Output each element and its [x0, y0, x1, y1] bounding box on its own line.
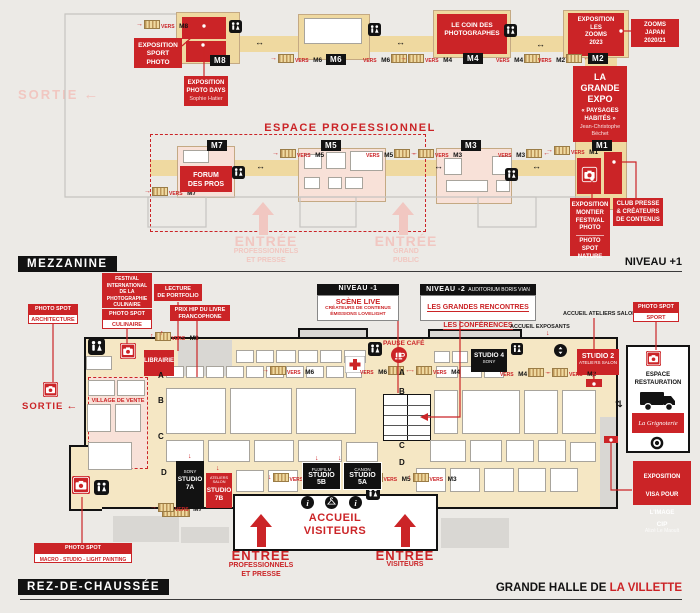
entree-pro-arrow-icon: [252, 202, 274, 235]
entree-pro-ground-arrow-icon: [250, 514, 272, 547]
photo-spot-camera-icon: [72, 476, 90, 499]
restrooms-icon: [94, 480, 109, 500]
vers-label: VERS M5: [366, 144, 393, 162]
expo-visa-cip: CIP: [633, 521, 691, 528]
restrooms-icon: [511, 342, 523, 360]
stairs-hatch: [273, 473, 289, 482]
vers-arrow-icon: →: [144, 188, 151, 195]
booth: [226, 366, 244, 378]
chip-m5: M5: [321, 140, 341, 151]
vers-m2: VERS M2←: [538, 49, 590, 67]
vers-label: VERS M4: [500, 363, 527, 381]
lecture-portfolio-callout: LECTURE DE PORTFOLIO: [154, 284, 202, 301]
booth: [524, 390, 558, 434]
booth: [506, 440, 534, 462]
chip-m3: M3: [461, 140, 481, 151]
vers-m8: ↑VERS M8: [150, 327, 199, 345]
entree-public-sub: GRAND PUBLIC: [376, 247, 436, 265]
expo-visa-author: Alizé Le Maoult: [633, 528, 691, 534]
booth: [304, 18, 362, 44]
chip-m8: M8: [210, 55, 230, 66]
ground-divider: [20, 599, 682, 600]
vers-m3: →VERS M3: [410, 144, 462, 162]
vers-label: VERS M4: [496, 49, 523, 67]
visa-connector-chip: [604, 436, 618, 443]
pause-cafe-label: PAUSE CAFÉ: [383, 340, 433, 347]
chip-m4: M4: [463, 53, 483, 64]
gray-block-bottom-1: [113, 516, 179, 542]
vers-arrow-icon: →: [410, 150, 417, 157]
accueil-visiteurs-label: ACCUEIL VISITEURS: [270, 512, 400, 538]
entree-visiteurs-arrow-icon: [394, 514, 416, 547]
booth: [166, 388, 226, 434]
vers-arrow-icon: ↓: [408, 474, 412, 481]
studio-5a-label: STUDIO 5A: [344, 472, 381, 486]
two-way-arrow-icon: ↔: [434, 161, 443, 171]
vers-m6: →VERS M6: [262, 361, 314, 379]
vers-m3: ↓VERS M3: [408, 468, 457, 486]
niveau-moins2-chip: NIVEAU -2 AUDITORIUM BORIS VIAN: [420, 284, 536, 295]
stairs-hatch: [413, 473, 429, 482]
direction-arrow-icon: ↓: [338, 455, 342, 462]
vers-arrow-icon: →: [262, 367, 269, 374]
photo-spot-architecture-label: ARCHITECTURE: [28, 314, 78, 324]
vers-arrow-icon: →: [150, 504, 157, 511]
roof-bump-1: [298, 328, 368, 339]
booth: [320, 350, 342, 363]
espace-pro-title: ESPACE PROFESSIONNEL: [240, 122, 460, 134]
sortie-ground-label: SORTIE: [22, 401, 63, 412]
entree-public-arrow-icon: [392, 202, 414, 235]
booth: [208, 440, 250, 462]
studio-5a: CANON STUDIO 5A: [343, 462, 382, 490]
studio-4-label: STUDIO 4: [471, 352, 507, 359]
booth: [328, 177, 342, 189]
vers-m4: →VERS M4: [408, 361, 460, 379]
vers-label: VERS M3: [435, 144, 462, 162]
stairs-hatch: [158, 503, 174, 512]
grande-expo-sub: « PAYSAGES HABITÉS »: [573, 108, 627, 123]
vers-arrow-icon: ↓: [268, 474, 272, 481]
vers-m1: →VERS M1: [546, 141, 598, 159]
hall-gray-strip-right: [600, 417, 616, 507]
coin-des-photographes: LE COIN DES PHOTOGRAPHES: [437, 14, 507, 54]
vers-label: VERS M3: [430, 468, 457, 486]
ground-band: REZ-DE-CHAUSSÉE: [18, 579, 169, 595]
mezzanine-divider: [20, 271, 682, 272]
two-way-arrow-icon: ↔: [256, 161, 265, 171]
expo-visa: EXPOSITION VISA POUR L'IMAGE CIP Alizé L…: [633, 461, 691, 505]
two-way-arrow-icon: ↔: [536, 39, 545, 49]
booth: [230, 388, 292, 434]
expo-sport-photo: EXPOSITION SPORT PHOTO: [134, 38, 182, 68]
niveau-plus1-label: NIVEAU +1: [560, 256, 682, 268]
booth: [236, 350, 254, 363]
vers-arrow-icon: →: [136, 21, 143, 28]
restrooms-icon: [88, 338, 105, 360]
stairs-hatch: [528, 368, 544, 377]
vers-label: VERS M4: [433, 361, 460, 379]
festival-culinaire-callout: FESTIVAL INTERNATIONAL DE LA PHOTOGRAPHI…: [102, 273, 152, 308]
vers-label: VERS M5: [384, 468, 411, 486]
stairs-hatch: [394, 149, 410, 158]
booth: [186, 366, 204, 378]
vers-arrow-icon: →: [272, 150, 279, 157]
booth: [115, 404, 141, 432]
vers-m3: VERS M3←: [498, 144, 550, 162]
vers-label: VERS M6: [287, 361, 314, 379]
expo-photo-days: EXPOSITION PHOTO DAYS Sophie Hatier: [184, 76, 228, 106]
studio-7b: ATELIERS SALON STUDIO 7B: [206, 473, 232, 508]
chip-m6: M6: [326, 54, 346, 65]
photo-spot-sport-label: SPORT: [633, 312, 679, 322]
auditorium-label: AUDITORIUM BORIS VIAN: [468, 287, 530, 293]
photo-spot-culinaire-chip: PHOTO SPOT: [102, 309, 152, 319]
restrooms-icon: [232, 166, 245, 184]
booth: [88, 442, 132, 470]
m8-expo-area-1: [182, 17, 226, 39]
vers-m4: →VERS M4: [400, 49, 452, 67]
niveau-moins2-label: NIVEAU -2: [426, 286, 465, 293]
direction-arrow-icon: ↓: [216, 465, 220, 472]
booth: [345, 177, 363, 189]
booth: [296, 388, 356, 434]
restrooms-icon: [505, 168, 518, 186]
stairs-hatch: [526, 149, 542, 158]
zooms-japan-callout: ZOOMS JAPAN 2020/21: [631, 19, 679, 47]
expo-montier: EXPOSITION MONTIER FESTIVAL PHOTO PHOTO …: [570, 198, 610, 256]
vers-arrow-icon: →: [408, 367, 415, 374]
accueil-exposants-label: ACCUEIL EXPOSANTS: [510, 324, 570, 330]
niveau-moins1-chip: NIVEAU -1: [317, 284, 399, 295]
row-letter-D: D: [161, 468, 167, 477]
vers-label: VERS M8: [172, 327, 199, 345]
photo-spot-camera-icon: [581, 166, 598, 188]
vers-m7: →VERS M7: [150, 498, 202, 516]
photo-spot-macro-chip: PHOTO SPOT: [34, 543, 132, 553]
restrooms-icon: [368, 23, 381, 41]
photo-spot-sport-chip: PHOTO SPOT: [633, 302, 679, 312]
prix-hip-callout: PRIX HIP DU LIVRE FRANCOPHONE: [170, 305, 230, 321]
village-de-vente-label: VILLAGE DE VENTE: [89, 398, 147, 404]
photo-spot-camera-icon: [646, 351, 661, 371]
elevator-icon: [554, 344, 567, 362]
stairs-hatch: [416, 366, 432, 375]
row-letter-A: A: [399, 368, 405, 377]
booth: [430, 440, 466, 462]
sortie-mezzanine-arrow-icon: ←: [83, 86, 98, 103]
booth: [117, 380, 145, 396]
row-letter-C: C: [399, 441, 405, 450]
row-letter-C: C: [158, 432, 164, 441]
entree-pro-ground-sub: PROFESSIONNELS ET PRESSE: [201, 561, 321, 579]
grand-staircase: [383, 394, 431, 441]
transfer-arrows-icon: ⇅: [615, 399, 623, 410]
club-presse: CLUB PRESSE & CRÉATEURS DE CONTENUS: [613, 198, 663, 226]
gray-block-bottom-2: [181, 527, 229, 543]
grignoterie-label: La Grignoterie: [638, 420, 677, 427]
chip-m2: M2: [588, 53, 608, 64]
row-letter-D: D: [399, 458, 405, 467]
booth: [446, 180, 488, 192]
grande-expo-title: LA GRANDE EXPO: [573, 72, 627, 104]
vers-label: VERS M6: [295, 49, 322, 67]
venue-title: GRANDE HALLE DE LA VILLETTE: [360, 582, 682, 594]
booth: [462, 390, 520, 434]
restrooms-icon: [368, 342, 382, 361]
vers-arrow-icon: →: [544, 369, 551, 376]
booth: [538, 440, 566, 462]
direction-arrow-icon: ↑: [591, 374, 595, 382]
studio-7a-brand: SONY: [176, 469, 204, 474]
booth: [326, 152, 346, 169]
chip-m7: M7: [207, 140, 227, 151]
booth: [206, 366, 224, 378]
mezzanine-band: MEZZANINE: [18, 256, 117, 272]
row-letter-A: A: [158, 371, 164, 380]
stairs-hatch: [566, 54, 582, 63]
restrooms-icon: [504, 24, 517, 42]
direction-arrow-icon: ↓: [315, 455, 319, 462]
booth: [87, 404, 111, 432]
booth: [434, 390, 458, 434]
booth: [518, 468, 546, 492]
photo-spot-camera-icon: [43, 382, 58, 402]
grande-expo-author: Jean-Christophe Béchet: [573, 124, 627, 137]
stairs-hatch: [270, 366, 286, 375]
grandes-rencontres-label: LES GRANDES RENCONTRES: [427, 304, 529, 312]
vers-arrow-icon: ↑: [150, 333, 154, 340]
entree-pro-mezz-sub: PROFESSIONNELS ET PRESSE: [206, 247, 326, 265]
coat-check-icon: [325, 496, 338, 514]
niveau-moins1-box: SCÈNE LIVE CRÉATEURS DE CONTENUS ÉMISSIO…: [317, 295, 399, 321]
booth: [236, 470, 264, 492]
photo-spot-architecture-chip: PHOTO SPOT: [28, 304, 78, 314]
vers-label: VERS M7: [175, 498, 202, 516]
stairs-hatch: [152, 187, 168, 196]
vers-m6: →VERS M6: [270, 49, 322, 67]
vers-arrow-icon: →: [546, 147, 553, 154]
booth: [183, 150, 209, 163]
booth: [484, 468, 514, 492]
sortie-ground-arrow-icon: ←: [66, 400, 77, 412]
photo-spot-macro-label: MACRO - STUDIO - LIGHT PAINTING: [34, 553, 132, 563]
direction-arrow-icon: ↑: [160, 330, 164, 337]
booth: [550, 468, 578, 492]
food-truck-icon: [638, 390, 678, 417]
vers-label: VERS M2: [538, 49, 565, 67]
scene-live-label: SCÈNE LIVE: [318, 297, 398, 306]
booth: [166, 440, 204, 462]
booth: [304, 177, 320, 189]
studio-7b-label: STUDIO 7B: [206, 487, 232, 503]
studio-2-label: STUDIO 2: [577, 353, 619, 360]
direction-arrow-icon: ↓: [546, 330, 550, 337]
studio-7a-label: STUDIO 7A: [176, 476, 204, 492]
two-way-arrow-icon: ↔: [396, 37, 405, 47]
expo-visa-title: EXPOSITION VISA POUR L'IMAGE: [644, 474, 681, 516]
m1-club-area: [604, 152, 622, 194]
niveau-moins2-box: LES GRANDES RENCONTRES LES CONFÉRENCES: [420, 295, 536, 321]
restrooms-icon: [229, 20, 242, 38]
row-letter-B: B: [158, 396, 164, 405]
vers-arrow-icon: →: [270, 55, 277, 62]
vers-label: VERS M8: [161, 15, 188, 33]
chip-m1: M1: [592, 140, 612, 151]
grande-expo-block: LA GRANDE EXPO « PAYSAGES HABITÉS » Jean…: [573, 66, 627, 142]
floor-map: LE COIN DES PHOTOGRAPHES EXPOSITION LES …: [0, 0, 700, 613]
forum-des-pros: FORUM DES PROS: [180, 166, 232, 192]
two-way-arrow-icon: ↔: [532, 161, 541, 171]
booth: [88, 380, 115, 396]
accueil-ateliers-label: ACCUEIL ATELIERS SALON: [563, 311, 636, 317]
entree-visiteurs-sub: VISITEURS: [355, 561, 455, 568]
vers-m8: →VERS M8: [136, 15, 188, 33]
conferences-label: LES CONFÉRENCES: [443, 322, 512, 330]
booth: [570, 442, 596, 462]
direction-arrow-icon: ↓: [188, 453, 192, 460]
stairs-hatch: [144, 20, 160, 29]
venue-title-black: GRANDE HALLE DE: [496, 582, 607, 594]
info-icon: i: [349, 496, 362, 514]
stairs-hatch: [278, 54, 294, 63]
studio-5b: FUJIFILM STUDIO 5B: [302, 462, 341, 490]
venue-title-red: LA VILLETTE: [610, 582, 682, 594]
two-way-arrow-icon: ↔: [255, 37, 264, 47]
booth: [562, 390, 596, 434]
vers-label: VERS M4: [425, 49, 452, 67]
booth: [470, 440, 502, 462]
stairs-hatch: [554, 146, 570, 155]
scene-live-sub: CRÉATEURS DE CONTENUS ÉMISSIONS LOVELIGH…: [318, 306, 398, 318]
photo-spot-culinaire-label: CULINAIRE: [102, 319, 152, 329]
info-icon: i: [301, 496, 314, 514]
vers-label: VERS M6: [363, 49, 390, 67]
booth: [254, 440, 294, 462]
expo-photo-days-title: EXPOSITION PHOTO DAYS: [186, 80, 225, 94]
row-letter-B: B: [399, 387, 405, 396]
vers-label: VERS M3: [498, 144, 525, 162]
stairs-hatch: [280, 149, 296, 158]
sortie-mezzanine: SORTIE ←: [18, 86, 98, 103]
vers-m5: →VERS M5: [272, 144, 324, 162]
vers-arrow-icon: →: [400, 55, 407, 62]
stairs-hatch: [418, 149, 434, 158]
stairs-hatch: [408, 54, 424, 63]
booth: [346, 442, 378, 462]
expo-montier-title: EXPOSITION MONTIER FESTIVAL PHOTO: [572, 202, 609, 231]
booth: [326, 366, 344, 378]
vers-m2: →VERS M2: [544, 363, 596, 381]
stairs-hatch: [552, 368, 568, 377]
photo-spot-camera-icon: [120, 343, 136, 364]
gray-block-bottom-3: [441, 518, 509, 548]
studio-7b-sub: ATELIERS SALON: [206, 476, 232, 484]
vers-label: VERS M6: [360, 361, 387, 379]
booth: [298, 440, 342, 462]
sortie-mezzanine-label: SORTIE: [18, 87, 78, 102]
studio-5b-label: STUDIO 5B: [303, 472, 340, 486]
espace-restauration-label: ESPACE RESTAURATION: [628, 372, 688, 387]
plate-icon: [650, 436, 664, 455]
expo-photo-days-sub: Sophie Hatier: [184, 96, 228, 103]
